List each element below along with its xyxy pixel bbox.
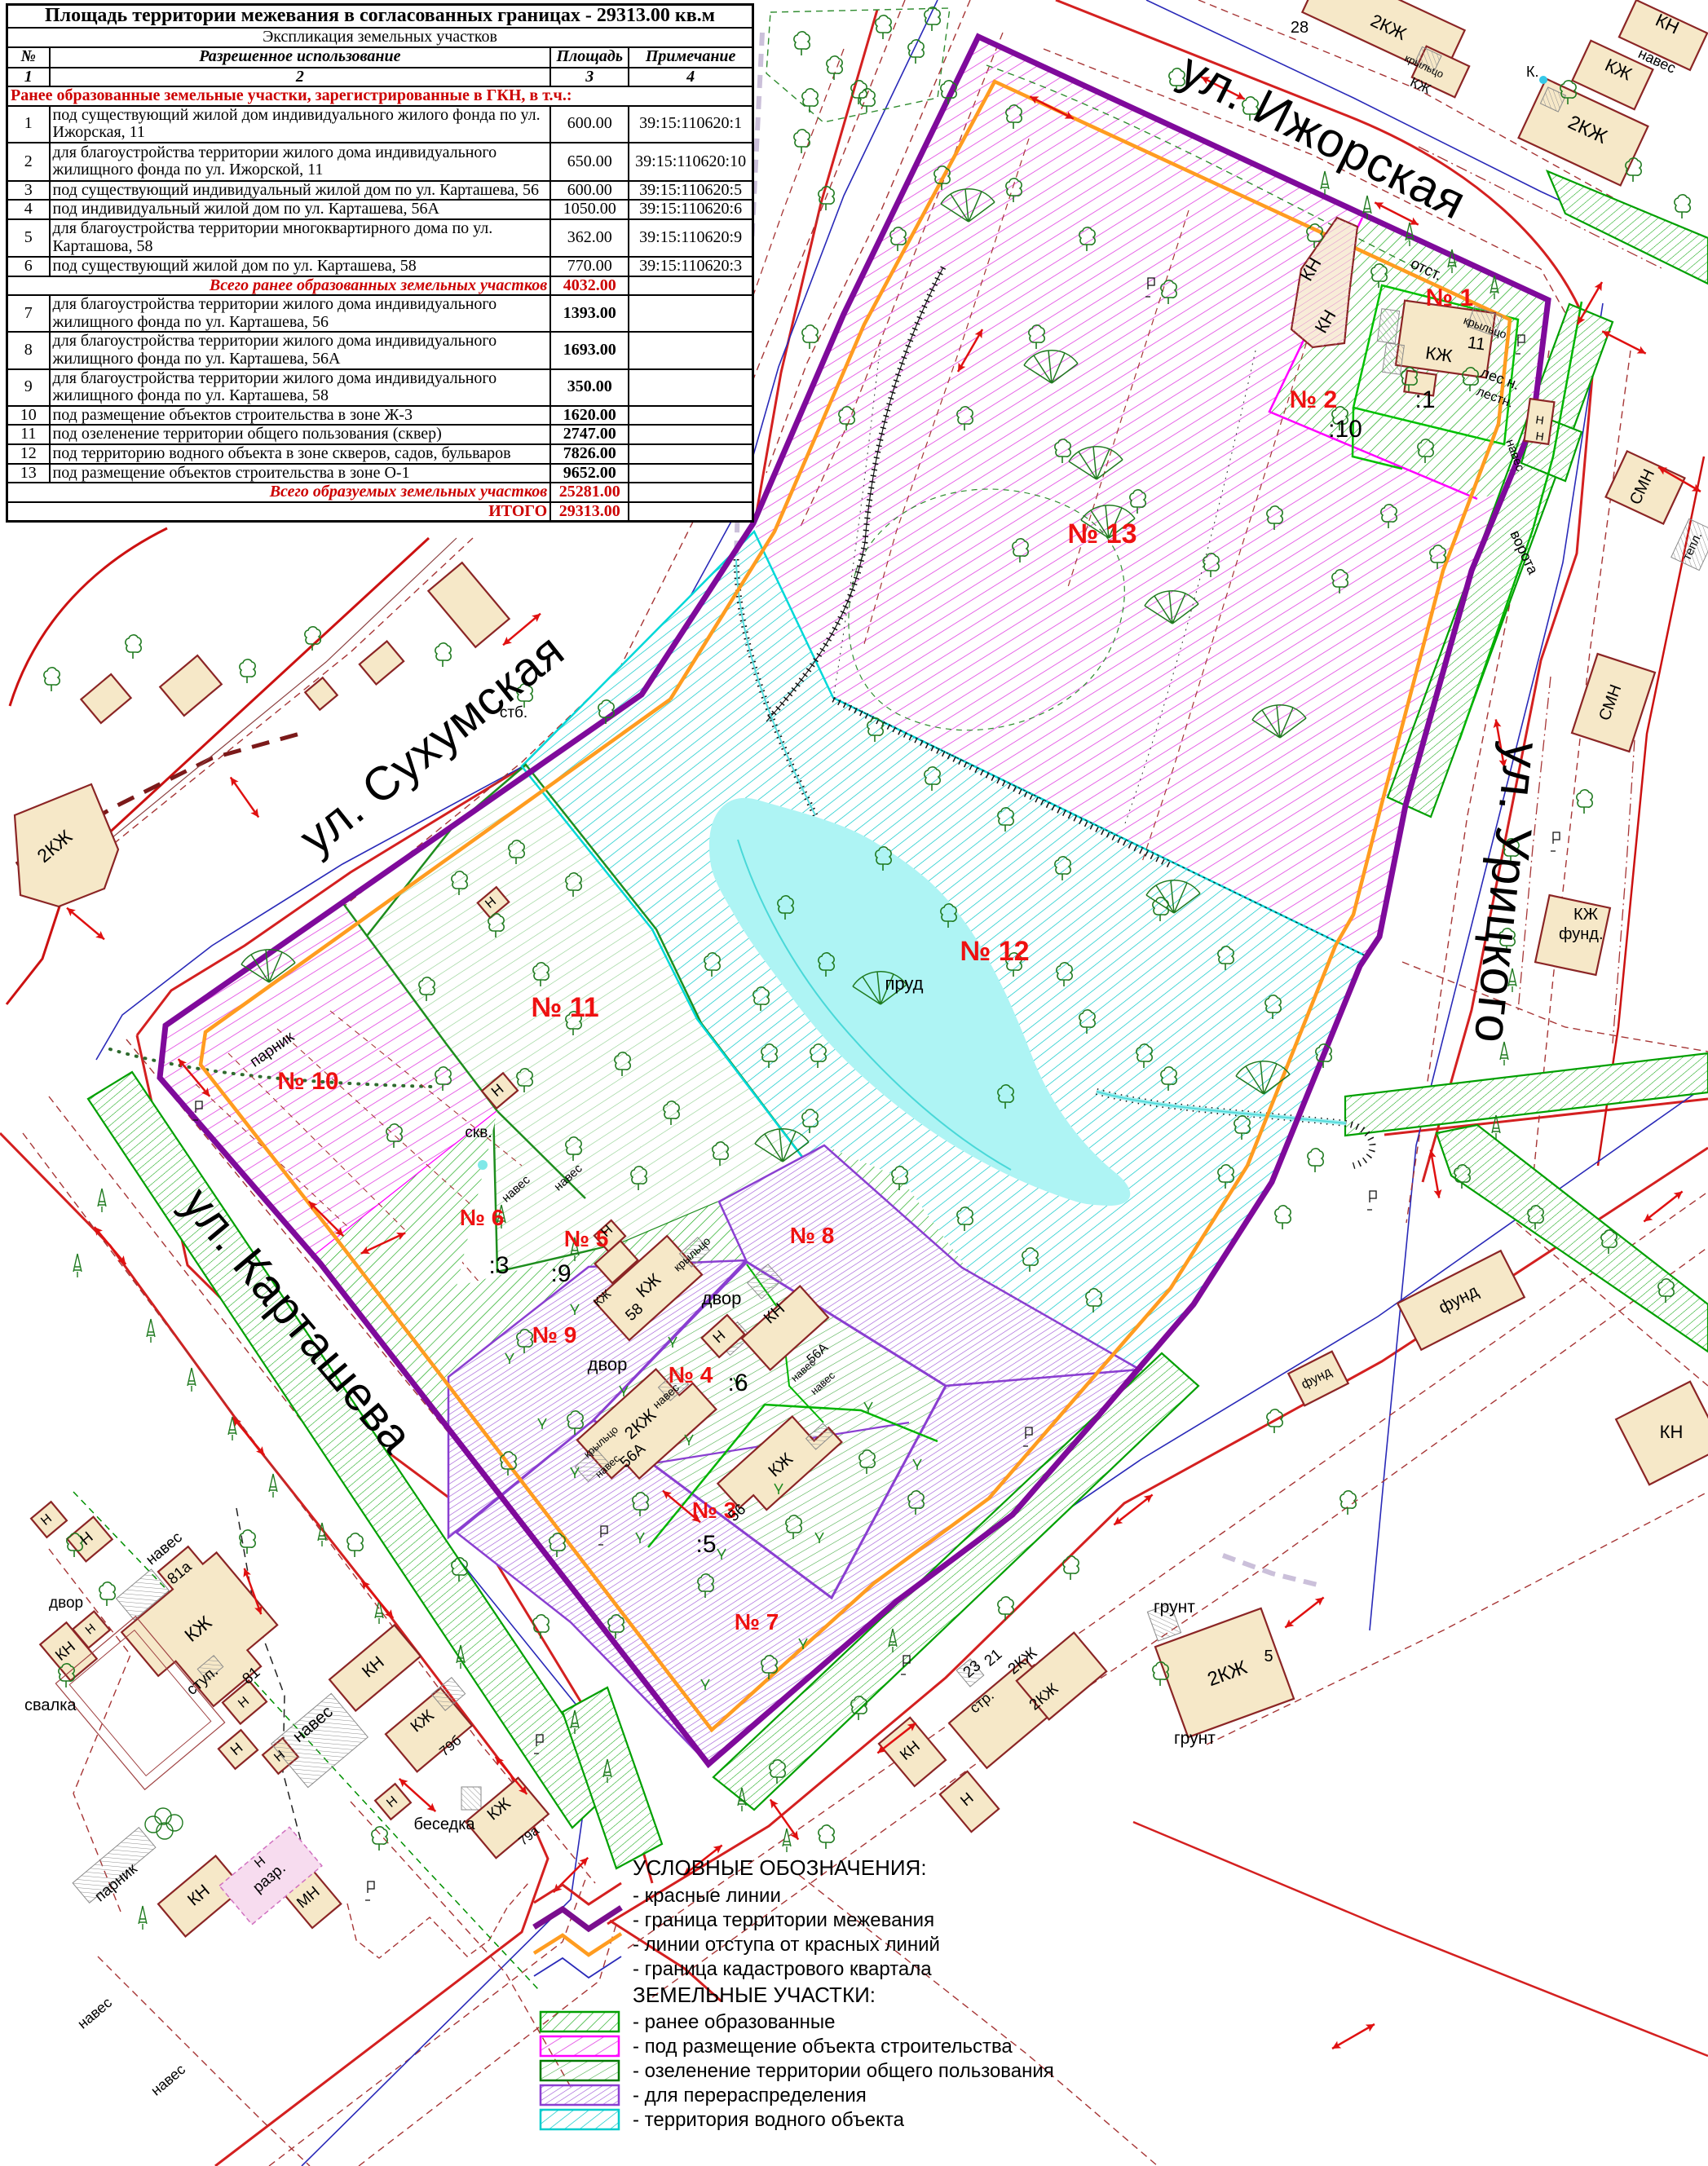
svg-text::9: :9	[550, 1260, 571, 1287]
svg-text::10: :10	[1328, 416, 1362, 443]
svg-text:№ 2: № 2	[1290, 386, 1337, 413]
svg-text::1: :1	[1415, 386, 1435, 413]
svg-text:№ 10: № 10	[277, 1068, 338, 1095]
svg-text:КН: КН	[1660, 1422, 1684, 1442]
svg-text:свалка: свалка	[24, 1696, 77, 1714]
svg-text:- ранее образованные: - ранее образованные	[633, 2011, 836, 2033]
svg-text:№ 8: № 8	[790, 1223, 835, 1248]
svg-text::6: :6	[727, 1370, 748, 1396]
svg-text:№ 11: № 11	[531, 992, 598, 1023]
svg-text:фунд.: фунд.	[1559, 925, 1604, 943]
svg-text:пруд: пруд	[885, 973, 923, 994]
svg-text:грунт: грунт	[1154, 1598, 1195, 1617]
svg-text:- граница кадастрового квартал: - граница кадастрового квартала	[633, 1958, 932, 1980]
svg-text:- красные линии: - красные линии	[633, 1885, 781, 1907]
svg-text:- линии отступа от красных лин: - линии отступа от красных линий	[633, 1934, 940, 1956]
svg-text:грунт: грунт	[1174, 1729, 1216, 1748]
svg-text:двор: двор	[588, 1354, 628, 1374]
svg-text:№ 6: № 6	[460, 1205, 505, 1230]
svg-text:- территория водного объекта: - территория водного объекта	[633, 2109, 905, 2131]
svg-text:двор: двор	[702, 1288, 742, 1308]
svg-text:№ 12: № 12	[960, 936, 1029, 967]
svg-text:- озеленение территории общего: - озеленение территории общего пользован…	[633, 2060, 1054, 2082]
svg-text:скв.: скв.	[465, 1124, 492, 1141]
svg-text:ЗЕМЕЛЬНЫЕ УЧАСТКИ:: ЗЕМЕЛЬНЫЕ УЧАСТКИ:	[633, 1983, 876, 2007]
svg-text:5: 5	[1264, 1648, 1273, 1665]
svg-text:УСЛОВНЫЕ ОБОЗНАЧЕНИЯ:: УСЛОВНЫЕ ОБОЗНАЧЕНИЯ:	[633, 1855, 927, 1880]
svg-text:- граница территории межевания: - граница территории межевания	[633, 1909, 934, 1931]
svg-text:КЖ: КЖ	[1424, 342, 1454, 366]
svg-text:- для перераспределения: - для перераспределения	[633, 2084, 867, 2106]
svg-text:28: 28	[1291, 19, 1309, 37]
svg-text:№ 13: № 13	[1067, 518, 1136, 549]
svg-text:стб.: стб.	[500, 704, 527, 721]
svg-text:11: 11	[1467, 333, 1487, 355]
svg-text:№ 9: № 9	[532, 1322, 577, 1348]
svg-text:№ 7: № 7	[735, 1609, 779, 1634]
svg-text::3: :3	[488, 1252, 509, 1279]
svg-text::5: :5	[695, 1531, 716, 1558]
svg-text:№ 1: № 1	[1426, 285, 1473, 311]
svg-text:двор: двор	[49, 1595, 83, 1612]
svg-text:- под размещение объекта строи: - под размещение объекта строительства	[633, 2036, 1013, 2058]
svg-text:К.: К.	[1526, 64, 1539, 80]
svg-text:КЖ: КЖ	[1573, 906, 1599, 924]
svg-text:беседка: беседка	[413, 1815, 475, 1833]
